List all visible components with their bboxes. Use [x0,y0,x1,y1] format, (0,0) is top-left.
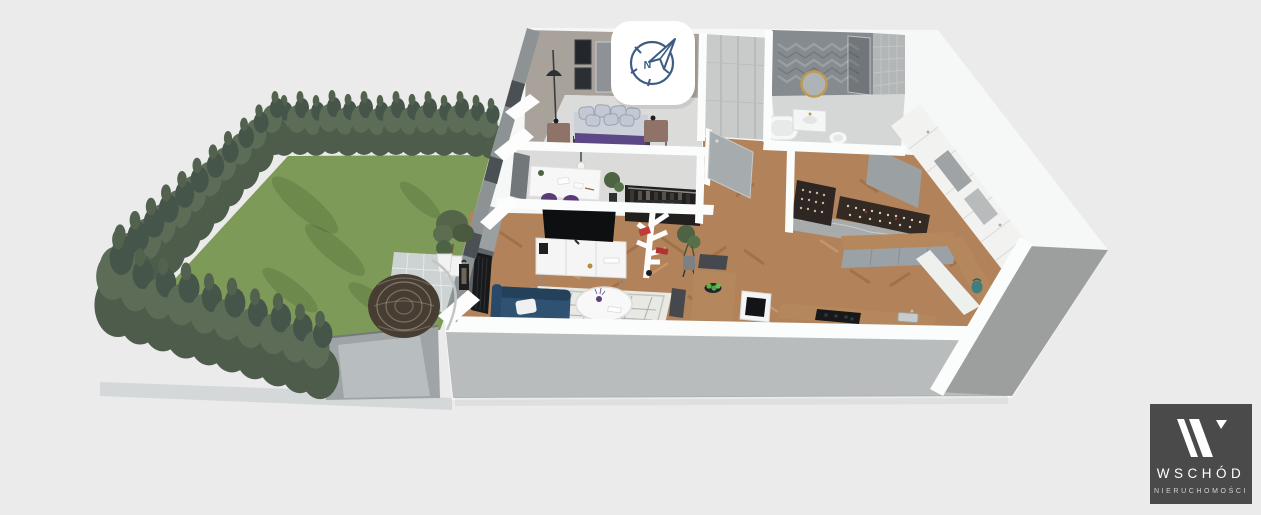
tablet [745,297,766,317]
vase [539,243,548,254]
shower-glass [848,36,870,95]
lantern [459,261,469,291]
dining-chair [698,254,728,270]
logo-subtitle-text: NIERUCHOMOŚCI [1154,486,1248,495]
wine-rack-angled [792,180,836,226]
door-handle [715,139,718,142]
coffee-table [576,287,632,321]
white-planter [436,240,452,272]
compass-tile[interactable] [611,21,695,105]
vanity-sink [793,109,826,132]
wall-art-frame [596,42,612,92]
wall-art-frame [575,68,591,89]
scene-canvas: N WSCHÓD NIERUCHOMOŚCI [0,0,1261,515]
wardrobe-doors [704,34,770,140]
floorplan-visualization: N WSCHÓD NIERUCHOMOŚCI [0,0,1261,515]
side-table [740,291,771,322]
logo-brand-text: WSCHÓD [1157,466,1246,481]
dining-chair [669,288,686,318]
dining-table [691,270,736,322]
vase [596,296,602,302]
driveway [323,326,440,400]
compass-north-icon[interactable]: N [611,21,697,109]
desk [529,166,601,200]
bathroom [766,30,905,148]
brand-logo: WSCHÓD NIERUCHOMOŚCI [1150,404,1252,504]
wall-art-frame [575,40,591,64]
front-wall-face [446,332,1010,398]
wardrobe-closet [704,34,770,140]
toilet [829,132,847,145]
round-mirror [802,72,827,97]
